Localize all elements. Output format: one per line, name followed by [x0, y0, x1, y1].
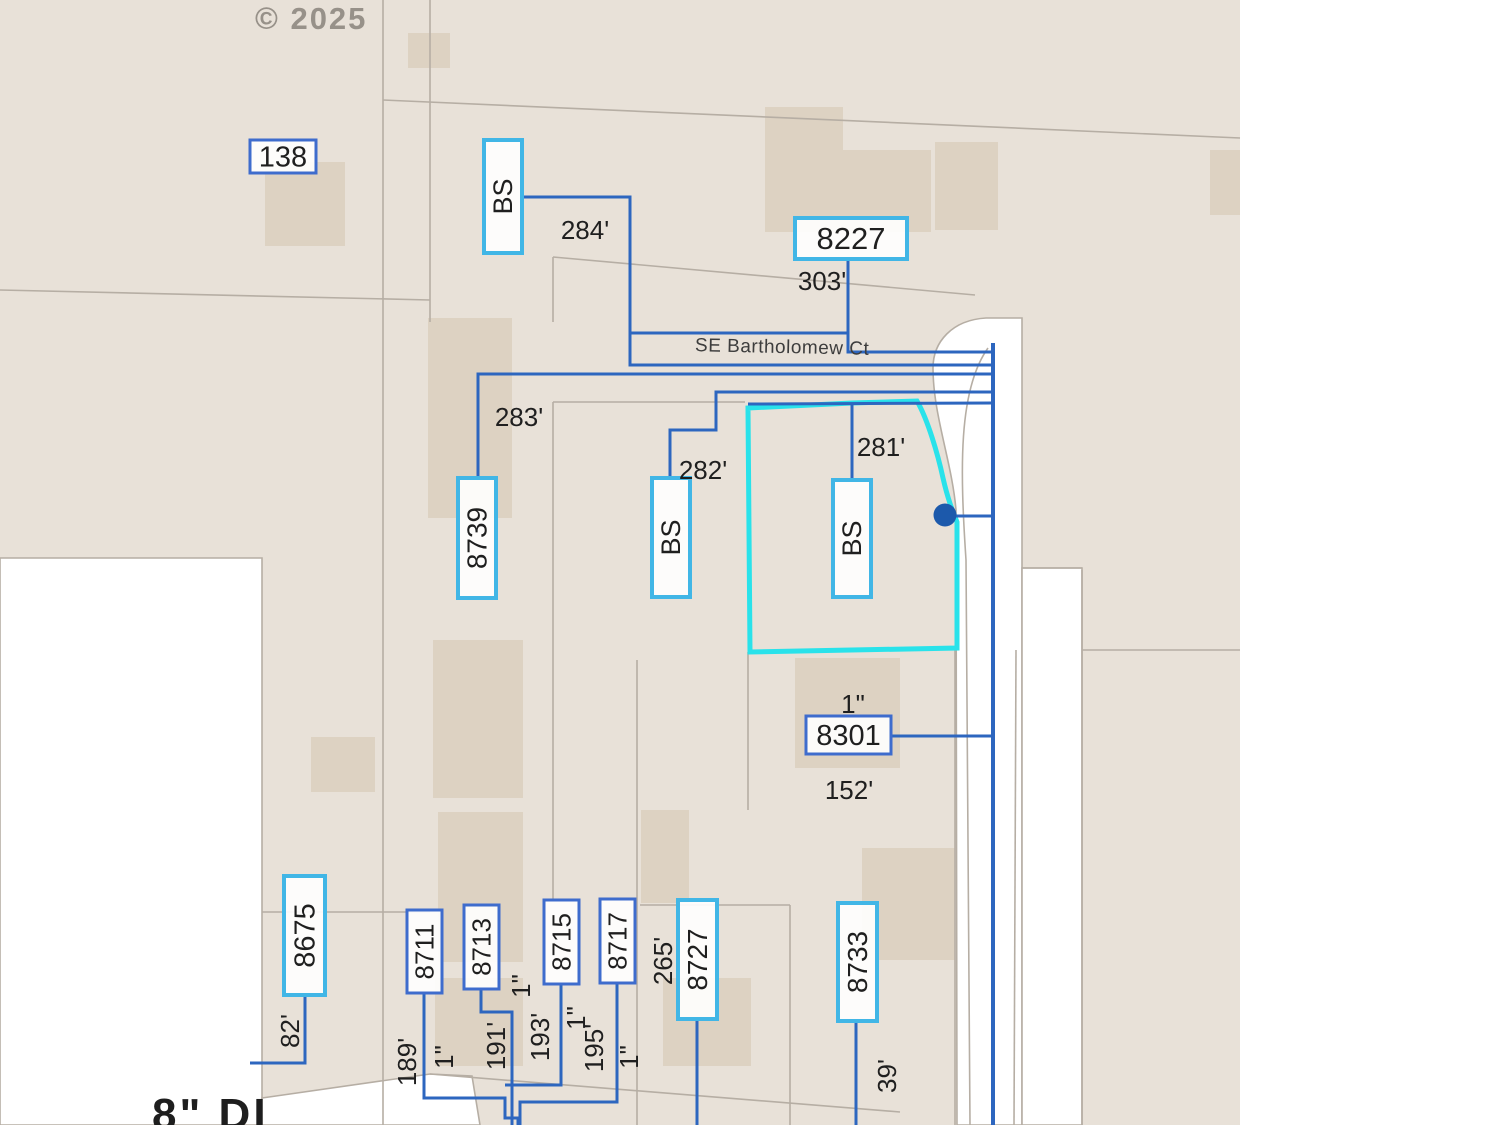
map-viewport: 138BS82278739BSBS83018675871187138715871… [0, 0, 1500, 1125]
building-footprint [311, 737, 375, 792]
measurement-label: 39' [872, 1059, 902, 1093]
address-label-text-bs-1: BS [488, 178, 518, 214]
measurement-label: 1" [429, 1045, 459, 1069]
street-name-label: SE Bartholomew Ct [695, 335, 870, 361]
building-footprint [265, 162, 345, 246]
address-label-text-8675: 8675 [289, 903, 321, 968]
measurement-label: 191' [481, 1022, 511, 1070]
measurement-label: 195' [579, 1024, 609, 1072]
measurement-label: 282' [679, 455, 727, 485]
measurement-label: 82' [275, 1014, 305, 1048]
address-label-text-8733: 8733 [842, 931, 873, 993]
map-canvas[interactable]: 138BS82278739BSBS83018675871187138715871… [0, 0, 1500, 1125]
map-edge-right [1240, 0, 1500, 1125]
measurement-label: 283' [495, 402, 543, 432]
measurement-label: 303' [798, 266, 846, 296]
address-label-text-bs-3: BS [837, 520, 867, 556]
address-label-text-8227: 8227 [817, 221, 886, 256]
address-label-text-8717: 8717 [602, 912, 632, 970]
address-label-text-8715: 8715 [546, 913, 576, 971]
building-footprint [935, 142, 998, 230]
street-right-notch [1022, 568, 1082, 1125]
pipe-size-label: 8" DI [152, 1090, 269, 1125]
measurement-label: 189' [392, 1038, 422, 1086]
address-label-text-bs-2: BS [656, 519, 686, 555]
building-footprint [765, 107, 843, 232]
service-point-dot [934, 504, 957, 527]
address-label-text-8739: 8739 [462, 507, 493, 569]
address-label-text-138: 138 [259, 141, 307, 173]
open-area-left [0, 558, 262, 1125]
measurement-label: 1" [841, 689, 865, 719]
building-footprint [1210, 150, 1240, 215]
building-footprint [433, 640, 523, 798]
measurement-label: 152' [825, 775, 873, 805]
building-footprint [641, 810, 689, 903]
measurement-label: 193' [525, 1013, 555, 1061]
address-label-text-8711: 8711 [409, 924, 439, 980]
address-label-text-8713: 8713 [466, 918, 496, 976]
address-label-text-8301: 8301 [816, 720, 881, 752]
address-label-text-8727: 8727 [682, 928, 713, 990]
measurement-label: 1" [506, 974, 536, 998]
building-footprint [408, 33, 450, 68]
measurement-label: 284' [561, 215, 609, 245]
measurement-label: 1" [614, 1045, 644, 1069]
measurement-label: 265' [648, 937, 678, 985]
service-line-281 [748, 403, 993, 404]
copyright-watermark: © 2025 [255, 1, 367, 37]
measurement-label: 281' [857, 432, 905, 462]
